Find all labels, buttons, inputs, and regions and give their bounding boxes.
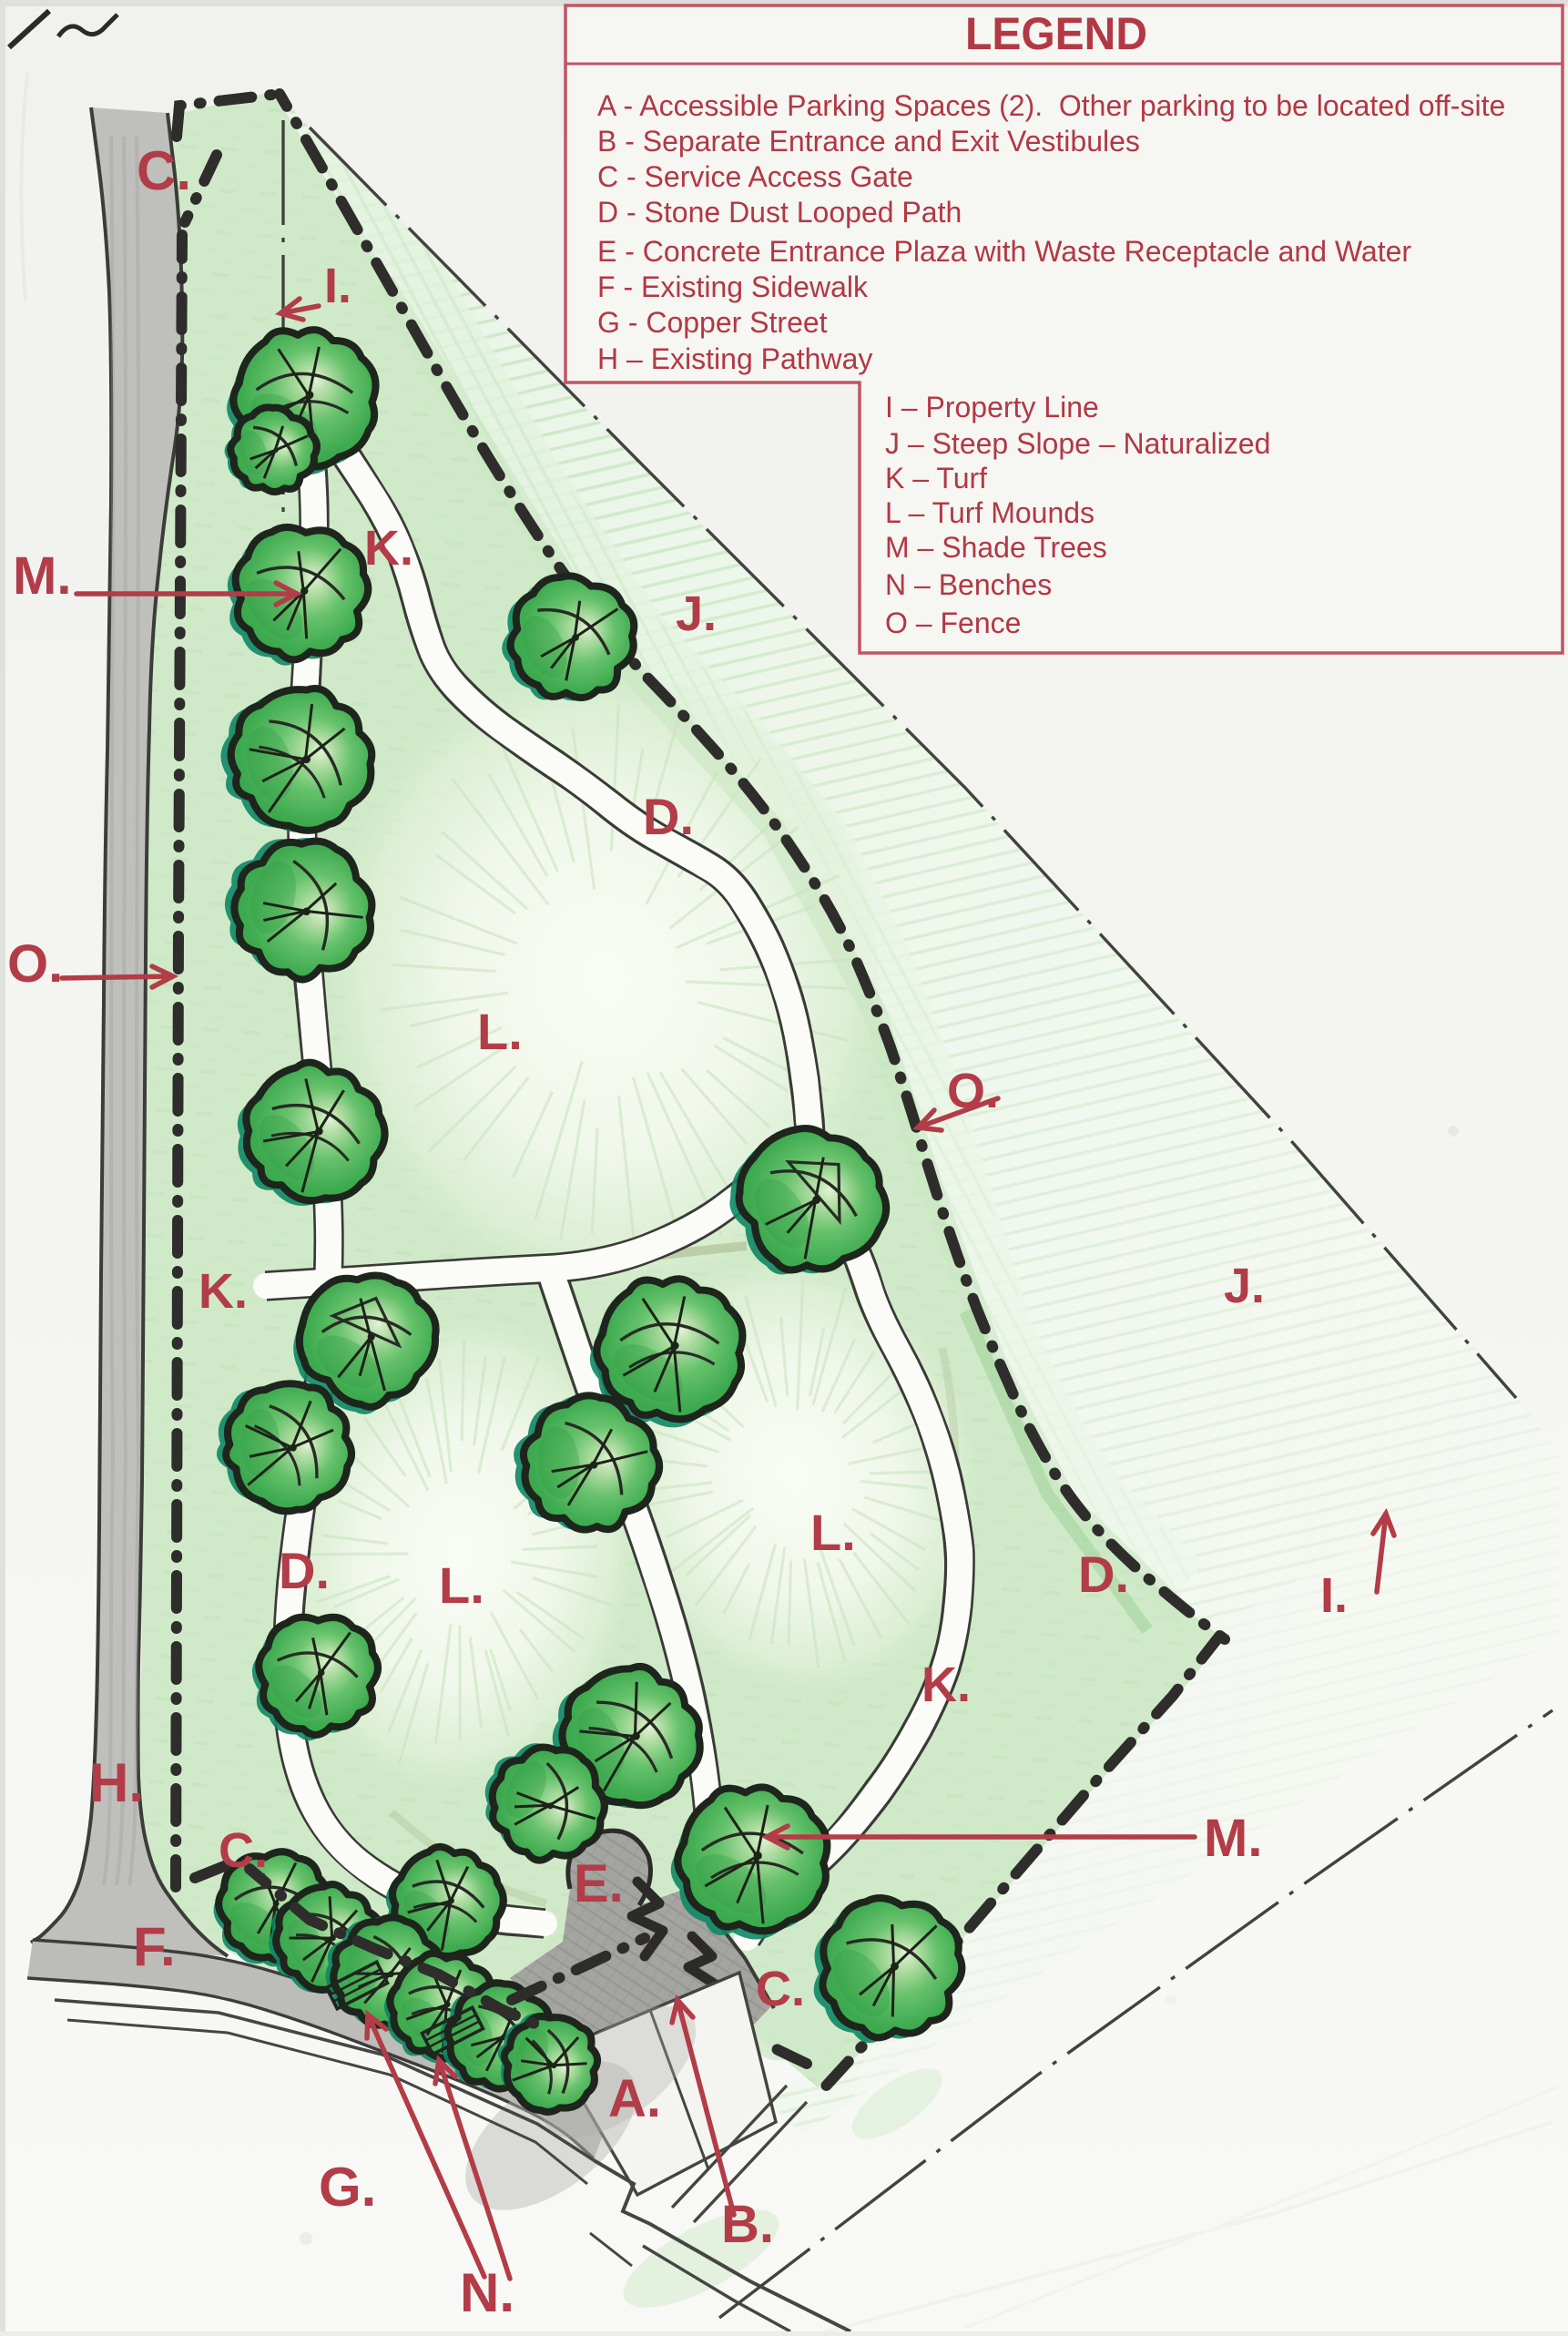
svg-text:D.: D.: [1078, 1545, 1129, 1603]
svg-text:F.: F.: [133, 1916, 176, 1977]
svg-text:I.: I.: [324, 259, 351, 313]
svg-text:K.: K.: [364, 521, 413, 576]
svg-text:D - Stone Dust Looped Path: D - Stone Dust Looped Path: [597, 196, 962, 229]
svg-text:H.: H.: [89, 1752, 144, 1813]
svg-text:F - Existing Sidewalk: F - Existing Sidewalk: [597, 270, 869, 303]
svg-text:M – Shade Trees: M – Shade Trees: [885, 531, 1107, 564]
svg-text:L.: L.: [810, 1504, 856, 1561]
svg-text:E - Concrete Entrance Plaza wi: E - Concrete Entrance Plaza with Waste R…: [597, 235, 1411, 268]
svg-text:G - Copper Street: G - Copper Street: [597, 306, 828, 339]
svg-text:C.: C.: [756, 1962, 805, 2016]
svg-text:N – Benches: N – Benches: [885, 568, 1052, 601]
svg-text:D.: D.: [279, 1542, 330, 1599]
svg-text:J.: J.: [1224, 1259, 1265, 1313]
svg-text:B - Separate Entrance and Exit: B - Separate Entrance and Exit Vestibule…: [597, 125, 1140, 158]
svg-text:M.: M.: [13, 546, 71, 606]
svg-text:L.: L.: [439, 1556, 484, 1614]
svg-text:L.: L.: [477, 1003, 523, 1060]
svg-text:O.: O.: [947, 1064, 999, 1118]
svg-text:J – Steep Slope – Naturalized: J – Steep Slope – Naturalized: [885, 427, 1270, 460]
svg-text:K.: K.: [199, 1264, 248, 1319]
svg-text:H – Existing Pathway: H – Existing Pathway: [597, 342, 872, 375]
svg-text:A - Accessible Parking Spaces: A - Accessible Parking Spaces (2). Other…: [597, 89, 1505, 122]
svg-text:C.: C.: [219, 1823, 268, 1878]
svg-text:G.: G.: [319, 2157, 376, 2218]
svg-text:C - Service Access Gate: C - Service Access Gate: [597, 160, 913, 193]
svg-text:E.: E.: [574, 1854, 624, 1913]
svg-text:J.: J.: [676, 587, 717, 641]
svg-text:I.: I.: [1320, 1568, 1348, 1623]
svg-text:O.: O.: [7, 934, 63, 994]
svg-text:A.: A.: [608, 2069, 661, 2128]
svg-text:O – Fence: O – Fence: [885, 607, 1021, 639]
svg-text:K.: K.: [921, 1658, 971, 1712]
svg-text:I – Property Line: I – Property Line: [885, 391, 1099, 423]
svg-text:M.: M.: [1204, 1809, 1262, 1868]
svg-text:C.: C.: [137, 140, 191, 201]
svg-text:LEGEND: LEGEND: [965, 8, 1147, 59]
svg-text:D.: D.: [643, 788, 694, 845]
svg-text:K – Turf: K – Turf: [885, 462, 987, 495]
svg-text:L – Turf Mounds: L – Turf Mounds: [885, 496, 1095, 529]
